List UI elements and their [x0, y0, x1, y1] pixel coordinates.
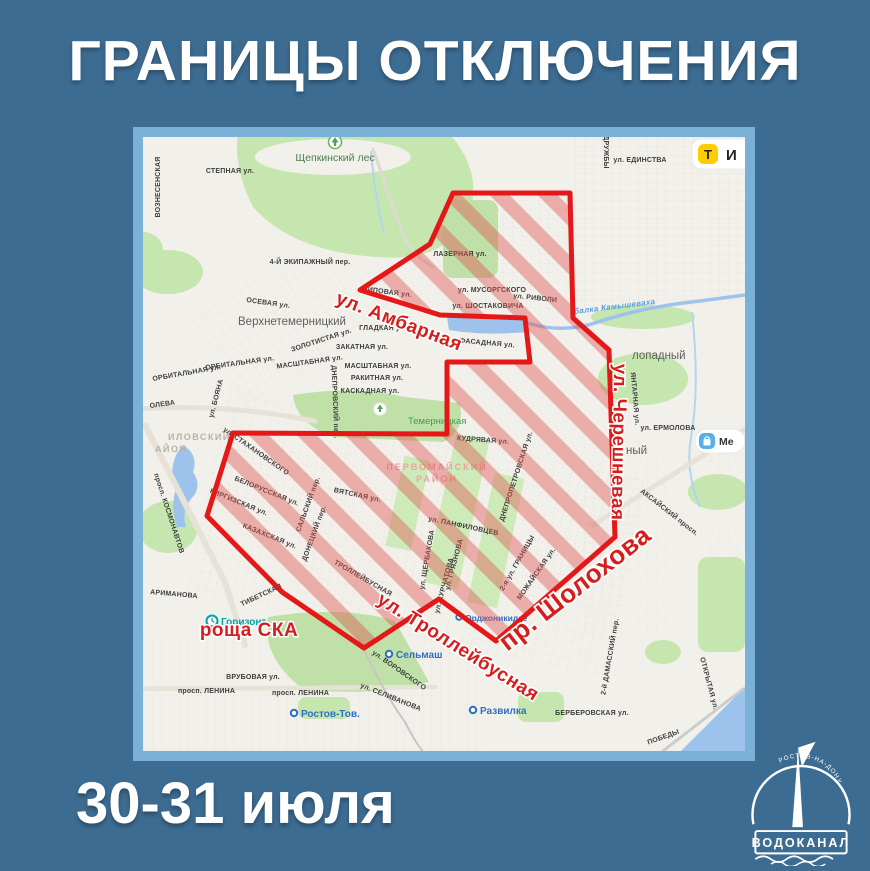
station-selmash: Сельмаш — [396, 650, 442, 661]
page-title: ГРАНИЦЫ ОТКЛЮЧЕНИЯ — [0, 28, 870, 94]
taxi-chip[interactable]: T И — [692, 139, 745, 169]
station-icon-razvilka — [470, 707, 476, 713]
station-razvilka: Развилка — [480, 706, 527, 717]
street-masshtabnaya-2: МАСШТАБНАЯ ул. — [345, 363, 412, 370]
map-svg: Щепкинский лес СТЕПНАЯ ул. ВОЗНЕСЕНСКАЯ … — [143, 137, 745, 751]
taxi-chip-label: И — [726, 147, 737, 164]
outage-dates: 30-31 июля — [76, 770, 395, 837]
street-vrubovaya: ВРУБОВАЯ ул. — [226, 674, 280, 681]
street-berberovskaya: БЕРБЕРОВСКАЯ ул. — [555, 710, 629, 717]
outage-map: Щепкинский лес СТЕПНАЯ ул. ВОЗНЕСЕНСКАЯ … — [133, 127, 755, 761]
street-rakitnaya: РАКИТНАЯ ул. — [351, 375, 403, 382]
zone-label-roscha-ska: роща СКА — [200, 620, 298, 641]
street-stepnaya: СТЕПНАЯ ул. — [206, 168, 254, 175]
street-zakatnaya: ЗАКАТНАЯ ул. — [336, 344, 388, 351]
taxi-icon-letter: T — [704, 147, 712, 162]
logo-wave-icon — [755, 856, 833, 862]
street-druzhby: ДРУЖБЫ — [602, 137, 609, 169]
mall-chip-label: Ме — [719, 436, 734, 448]
place-listopadny: лопадный — [632, 350, 686, 362]
street-lenina-2: просп. ЛЕНИНА — [272, 690, 329, 697]
street-lenina-1: просп. ЛЕНИНА — [178, 688, 235, 695]
street-voznesenskaya: ВОЗНЕСЕНСКАЯ — [155, 156, 162, 217]
street-ekipazhny: 4-Й ЭКИПАЖНЫЙ пер. — [270, 257, 351, 266]
place-schepkinsky-les: Щепкинский лес — [295, 152, 374, 164]
station-rostov-tov: Ростов-Тов. — [301, 709, 360, 720]
mall-chip[interactable]: Ме — [695, 429, 745, 453]
street-kaskadnaya: КАСКАДНАЯ ул. — [341, 388, 400, 395]
station-icon-rostov-tov — [291, 710, 297, 716]
district-voroshilovsky-2: АЙОН — [155, 443, 187, 454]
street-ermolova: ул. ЕРМОЛОВА — [640, 425, 695, 432]
place-verkhnetemernitsky: Верхнетемерницкий — [238, 316, 346, 328]
street-edinstva: ул. ЕДИНСТВА — [613, 157, 666, 164]
vodokanal-logo: РОСТОВ-НА-ДОНУ ВОДОКАНАЛ — [740, 734, 862, 866]
district-voroshilovsky-1: ИЛОВСКИЙ — [168, 431, 231, 442]
logo-org-text: ВОДОКАНАЛ — [752, 836, 851, 850]
zone-label-chereshnevaya: ул. Черешневая — [607, 363, 631, 520]
station-icon-selmash — [386, 651, 392, 657]
